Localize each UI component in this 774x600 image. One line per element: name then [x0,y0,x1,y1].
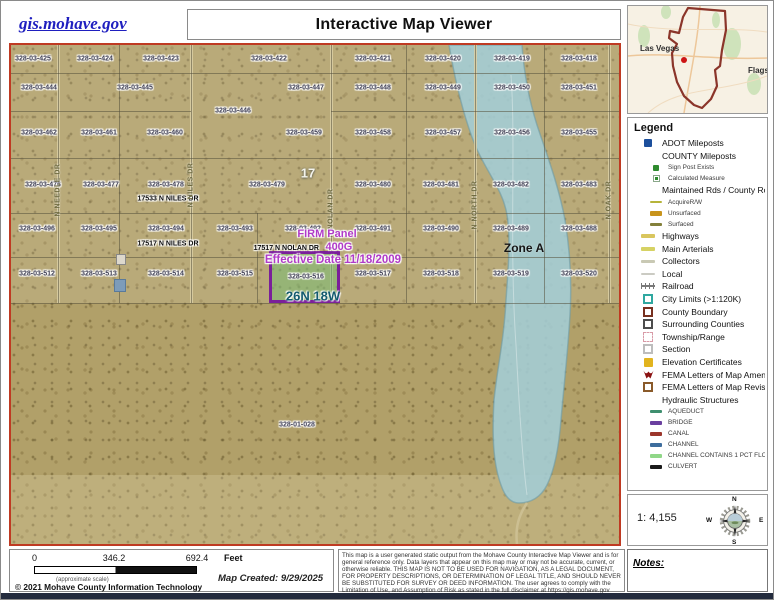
legend-item-label: CHANNEL [668,441,699,448]
legend-item-label: Surrounding Counties [662,319,744,329]
address-label: 17517 N NILES DR [137,241,198,248]
location-marker-dot [681,57,687,63]
parcel-label: 328-03-513 [81,271,117,278]
inset-city-label: Las Vegas [640,44,679,53]
title-box: Interactive Map Viewer [187,9,621,40]
legend-item: COUNTY Mileposts [634,150,765,163]
parcel-label: 328-01-028 [279,422,315,429]
line-icon [644,410,668,413]
parcel-label: 328-03-462 [21,130,57,137]
building-footprint [116,254,126,265]
parcel-line [544,45,545,303]
legend-item: AcquireR/W [644,197,765,208]
legend-item: Main Arterials [634,242,765,255]
parcel-label: 328-03-519 [493,271,529,278]
parcel-label: 328-03-490 [423,226,459,233]
legend-item-label: Section [662,344,690,354]
parcel-label: 328-03-449 [425,85,461,92]
square-icon [634,139,662,147]
parcel-label: 328-03-514 [148,271,184,278]
firm-panel-number: 400G [325,241,352,253]
legend-item-label: Hydraulic Structures [662,395,739,405]
parcel-label: 328-03-477 [83,182,119,189]
legend-item: Township/Range [634,331,765,344]
parcel-label: 328-03-460 [147,130,183,137]
line-icon [644,201,668,203]
street-label: N NEEDLE DR [55,164,62,217]
legend-item-label: Highways [662,231,699,241]
legend-item: Surfaced [644,219,765,230]
legend-item-label: Maintained Rds / County Routes [662,185,765,195]
railroad-icon [634,283,662,289]
legend-item: Maintained Rds / County Routes [634,184,765,197]
line-icon [634,260,662,263]
scale-ratio-text: 1: 4,155 [637,512,677,524]
legend-item: City Limits (>1:120K) [634,293,765,306]
line-icon [634,247,662,251]
parcel-line [406,45,407,303]
parcel-label: 328-03-421 [355,56,391,63]
legend-item-label: CHANNEL CONTAINS 1 PCT FLOOD [668,452,765,459]
legend-item: FEMA Letters of Map Amendme [634,368,765,381]
parcel-label: 328-03-489 [493,226,529,233]
legend-item-label: Unsurfaced [668,210,701,217]
legend-item: ADOT Mileposts [634,137,765,150]
parcel-label: 328-03-423 [143,56,179,63]
dirt-trail [516,503,527,544]
parcel-label: 328-03-493 [217,226,253,233]
parcel-label: 328-03-479 [249,182,285,189]
parcel-label: 328-03-496 [19,226,55,233]
square-dot-icon [644,175,668,182]
legend-item-label: Railroad [662,281,694,291]
parcel-label: 328-03-482 [493,182,529,189]
compass-west-label: W [706,517,712,524]
disclaimer-text: This map is a user generated static outp… [342,552,621,594]
parcel-label: 328-03-447 [288,85,324,92]
legend-item: Section [634,343,765,356]
box-icon [634,344,662,354]
parcel-line [11,73,619,74]
compass-rose: N E S W [706,497,764,545]
parcel-line [609,45,610,303]
parcel-label: 328-03-515 [217,271,253,278]
legend-panel: Legend ADOT MilepostsCOUNTY MilepostsSig… [627,117,768,491]
address-label: 17517 N NOLAN DR [254,245,319,252]
scalebar-tick-label: 346.2 [103,553,126,563]
parcel-label: 328-03-418 [561,56,597,63]
parcel-label: 328-03-445 [117,85,153,92]
legend-item-label: BRIDGE [668,419,693,426]
legend-item-label: AQUEDUCT [668,408,704,415]
street-label: N OAK DR [606,181,613,220]
parcel-label: 328-03-483 [561,182,597,189]
parcel-label: 328-03-422 [251,56,287,63]
legend-item: CULVERT [644,461,765,472]
line-icon [634,234,662,238]
legend-item-label: FEMA Letters of Map Amendme [662,370,765,380]
parcel-label: 328-03-488 [561,226,597,233]
parcel-label: 328-03-455 [561,130,597,137]
parcel-label: 328-03-424 [77,56,113,63]
parcel-label: 328-03-450 [494,85,530,92]
box-icon [634,294,662,304]
copyright-text: © 2021 Mohave County Information Technol… [15,582,202,592]
parcel-line [11,111,191,112]
line-icon [644,432,668,436]
legend-item-label: City Limits (>1:120K) [662,294,741,304]
scalebar-tick-label: 692.4 [186,553,209,563]
legend-item-label: County Boundary [662,307,728,317]
map-created-text: Map Created: 9/29/2025 [218,573,323,584]
legend-item: Unsurfaced [644,208,765,219]
locator-map-graphic [628,6,767,113]
line-icon [644,421,668,425]
line-icon [644,223,668,226]
legend-item-label: CANAL [668,430,689,437]
parcel-line [11,158,619,159]
parcel-label: 328-03-491 [355,226,391,233]
parcel-label: 328-03-478 [148,182,184,189]
legend-item-label: Surfaced [668,221,694,228]
legend-item: Railroad [634,280,765,293]
parcel-line [11,213,619,214]
legend-item: Sign Post Exists [644,162,765,173]
legend-item: County Boundary [634,305,765,318]
legend-item-label: Collectors [662,256,700,266]
line-icon [634,273,662,275]
parcel-label: 328-03-518 [423,271,459,278]
bottom-bar [1,593,774,600]
parcel-label: 328-03-517 [355,271,391,278]
street-label: N NILES DR [188,163,195,208]
township-range-label: 26N 18W [286,289,340,304]
scalebar-tick-label: 0 [32,553,37,563]
parcel-line [257,213,258,303]
parcel-line [331,111,619,112]
legend-item: BRIDGE [644,417,765,428]
square-icon [634,358,662,367]
site-link[interactable]: gis.mohave.gov [19,14,127,34]
legend-item-label: ADOT Mileposts [662,138,724,148]
page-title: Interactive Map Viewer [316,16,493,34]
legend-item-label: CULVERT [668,463,697,470]
page: gis.mohave.gov Interactive Map Viewer 32… [0,0,774,600]
parcel-label: 328-03-495 [81,226,117,233]
parcel-label: 328-03-459 [286,130,322,137]
legend-title: Legend [634,122,765,134]
line-icon [644,443,668,447]
parcel-label: 328-03-481 [423,182,459,189]
legend-item: Hydraulic Structures [634,394,765,407]
inset-city-label: Flagstaff [748,66,768,75]
notes-label: Notes: [633,558,664,569]
parcel-label: 328-03-480 [355,182,391,189]
disclaimer-box: This map is a user generated static outp… [338,549,625,592]
legend-item: CHANNEL [644,439,765,450]
scalebar-unit: Feet [224,553,243,563]
legend-item: AQUEDUCT [644,406,765,417]
scalebar-panel: 0346.2692.4 Feet (approximate scale) © 2… [9,549,334,592]
building-footprint [114,279,126,292]
parcel-label: 328-03-512 [19,271,55,278]
firm-address-line: 17517 N NOLAN DR 400G [254,237,353,255]
locator-inset-map[interactable]: Las VegasFlagstaff [627,5,768,114]
legend-item: FEMA Letters of Map Revision [634,381,765,394]
scalebar-graphic [34,566,197,574]
legend-item: Calculated Measure [644,173,765,184]
parcel-label: 328-03-446 [215,108,251,115]
parcel-label: 328-03-494 [148,226,184,233]
compass-east-label: E [759,517,763,524]
legend-item: Surrounding Counties [634,318,765,331]
legend-item-label: Calculated Measure [668,175,725,182]
legend-item: CHANNEL CONTAINS 1 PCT FLOOD [644,450,765,461]
parcel-label: 328-03-456 [494,130,530,137]
legend-item-label: COUNTY Mileposts [662,151,736,161]
map-canvas[interactable]: 328-03-425328-03-424328-03-423328-03-422… [9,43,621,546]
legend-item: Collectors [634,255,765,268]
fema-icon [634,370,662,379]
line-icon [644,454,668,458]
legend-item: CANAL [644,428,765,439]
legend-item: Elevation Certificates [634,356,765,369]
parcel-label: 328-03-419 [494,56,530,63]
compass-rose-icon [715,501,755,541]
section-number-label: 17 [301,166,315,181]
legend-items: ADOT MilepostsCOUNTY MilepostsSign Post … [634,137,765,472]
parcel-label: 328-03-457 [425,130,461,137]
legend-item: Local [634,268,765,281]
parcel-label: 328-03-444 [21,85,57,92]
box-dashed-icon [634,332,662,342]
parcel-label: 328-03-420 [425,56,461,63]
square-icon [644,165,668,171]
flood-zone-label: Zone A [504,241,544,255]
legend-item-label: Local [662,269,682,279]
street-label: N NORTH DR [472,181,479,230]
parcel-line [475,45,476,303]
box-icon [634,382,662,392]
legend-item-label: Township/Range [662,332,725,342]
parcel-label: 328-03-458 [355,130,391,137]
legend-item-label: FEMA Letters of Map Revision [662,382,765,392]
selected-parcel-label: 328-03-516 [288,274,324,281]
box-icon [634,307,662,317]
parcel-label: 328-03-451 [561,85,597,92]
line-icon [644,211,668,216]
legend-item: Highways [634,230,765,243]
scale-panel: 1: 4,155 N E S W [627,494,768,546]
firm-effective-date: Effective Date 11/18/2009 [265,254,401,266]
box-icon [634,319,662,329]
notes-box: Notes: [627,549,768,592]
parcel-label: 328-03-425 [15,56,51,63]
parcel-label: 328-03-448 [355,85,391,92]
parcel-label: 328-03-520 [561,271,597,278]
legend-item-label: AcquireR/W [668,199,702,206]
legend-item-label: Elevation Certificates [662,357,742,367]
legend-item-label: Main Arterials [662,244,714,254]
line-icon [644,465,668,469]
parcel-label: 328-03-461 [81,130,117,137]
legend-item-label: Sign Post Exists [668,164,714,171]
